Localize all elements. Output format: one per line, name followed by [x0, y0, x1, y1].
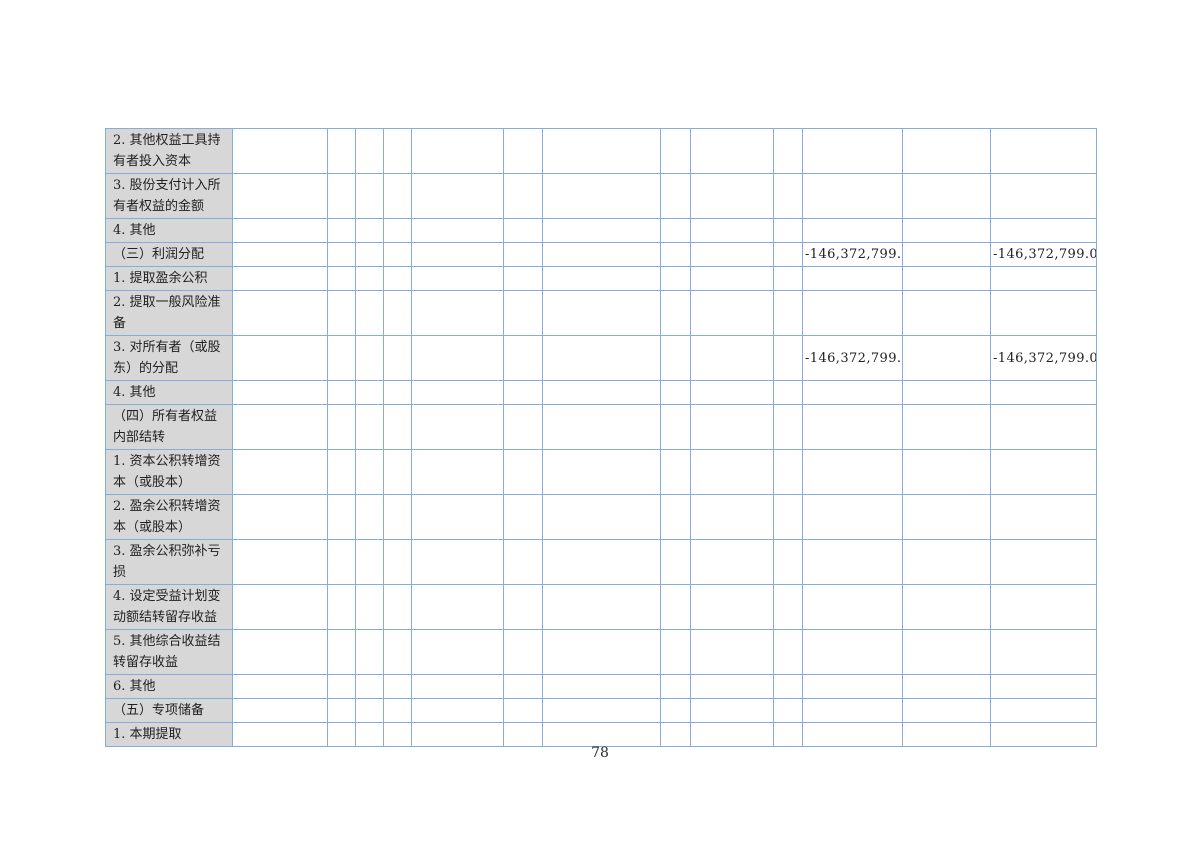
data-cell: [356, 699, 384, 723]
data-cell: [774, 699, 803, 723]
data-cell: [691, 291, 774, 336]
data-cell: [991, 630, 1097, 675]
data-cell: [803, 405, 903, 450]
data-cell: [412, 219, 504, 243]
data-cell: -146,372,799.02: [803, 243, 903, 267]
data-cell: [356, 243, 384, 267]
data-cell: [356, 381, 384, 405]
data-cell: [504, 336, 543, 381]
data-cell: [803, 630, 903, 675]
data-cell: [356, 585, 384, 630]
data-cell: [356, 267, 384, 291]
data-cell: [774, 585, 803, 630]
data-cell: [504, 675, 543, 699]
data-cell: [543, 174, 661, 219]
row-label: （三）利润分配: [106, 243, 233, 267]
data-cell: [504, 129, 543, 174]
data-cell: [233, 243, 328, 267]
data-cell: [991, 405, 1097, 450]
data-cell: [661, 405, 691, 450]
data-cell: [691, 495, 774, 540]
data-cell: [691, 129, 774, 174]
data-cell: [233, 540, 328, 585]
data-cell: [356, 405, 384, 450]
data-cell: [412, 585, 504, 630]
data-cell: [384, 405, 412, 450]
data-cell: [543, 129, 661, 174]
data-cell: [991, 219, 1097, 243]
data-cell: [356, 495, 384, 540]
data-cell: [774, 267, 803, 291]
data-cell: [233, 291, 328, 336]
row-label: （四）所有者权益内部结转: [106, 405, 233, 450]
data-cell: [774, 723, 803, 747]
table-row: 2. 其他权益工具持有者投入资本: [106, 129, 1097, 174]
data-cell: [661, 630, 691, 675]
data-cell: [903, 495, 991, 540]
data-cell: [691, 243, 774, 267]
data-cell: [384, 243, 412, 267]
data-cell: [543, 699, 661, 723]
data-cell: [412, 267, 504, 291]
data-cell: [991, 495, 1097, 540]
data-cell: [328, 174, 356, 219]
table-row: 4. 设定受益计划变动额结转留存收益: [106, 585, 1097, 630]
data-cell: [691, 630, 774, 675]
data-cell: [504, 585, 543, 630]
data-cell: [412, 675, 504, 699]
data-cell: [691, 174, 774, 219]
data-cell: [661, 336, 691, 381]
data-cell: [903, 267, 991, 291]
data-cell: [384, 495, 412, 540]
data-cell: [504, 267, 543, 291]
data-cell: [384, 540, 412, 585]
row-label: 3. 股份支付计入所有者权益的金额: [106, 174, 233, 219]
data-cell: [991, 699, 1097, 723]
data-cell: [356, 723, 384, 747]
data-cell: [903, 723, 991, 747]
data-cell: [504, 450, 543, 495]
data-cell: [991, 723, 1097, 747]
data-cell: [412, 699, 504, 723]
data-cell: -146,372,799.02: [991, 336, 1097, 381]
data-cell: [233, 405, 328, 450]
data-cell: [774, 675, 803, 699]
data-cell: [384, 129, 412, 174]
data-cell: [328, 291, 356, 336]
data-cell: [691, 405, 774, 450]
data-cell: [774, 219, 803, 243]
data-cell: [504, 243, 543, 267]
row-label: 1. 资本公积转增资本（或股本）: [106, 450, 233, 495]
data-cell: [774, 336, 803, 381]
data-cell: [384, 675, 412, 699]
data-cell: -146,372,799.02: [803, 336, 903, 381]
data-cell: [328, 381, 356, 405]
data-cell: [328, 243, 356, 267]
data-cell: [903, 174, 991, 219]
data-cell: [233, 450, 328, 495]
data-cell: [543, 243, 661, 267]
data-cell: [412, 450, 504, 495]
data-cell: [661, 267, 691, 291]
data-cell: [903, 699, 991, 723]
data-cell: [328, 495, 356, 540]
table-row: （三）利润分配-146,372,799.02-146,372,799.02: [106, 243, 1097, 267]
data-cell: [233, 675, 328, 699]
row-label: 2. 其他权益工具持有者投入资本: [106, 129, 233, 174]
data-cell: [543, 585, 661, 630]
data-cell: [356, 450, 384, 495]
data-cell: [803, 267, 903, 291]
row-label: 3. 对所有者（或股东）的分配: [106, 336, 233, 381]
data-cell: [328, 450, 356, 495]
data-cell: [384, 723, 412, 747]
row-label: 1. 本期提取: [106, 723, 233, 747]
data-cell: [356, 291, 384, 336]
data-cell: [803, 291, 903, 336]
data-cell: [412, 243, 504, 267]
data-cell: [774, 630, 803, 675]
data-cell: [903, 675, 991, 699]
data-cell: [543, 723, 661, 747]
data-cell: [412, 405, 504, 450]
data-cell: [356, 129, 384, 174]
data-cell: [991, 129, 1097, 174]
data-cell: [903, 336, 991, 381]
data-cell: [412, 495, 504, 540]
data-cell: [691, 699, 774, 723]
table-row: 1. 资本公积转增资本（或股本）: [106, 450, 1097, 495]
data-cell: [661, 291, 691, 336]
data-cell: [661, 129, 691, 174]
data-cell: [691, 585, 774, 630]
data-cell: [356, 174, 384, 219]
data-cell: [661, 540, 691, 585]
data-cell: [803, 174, 903, 219]
data-cell: [661, 174, 691, 219]
data-cell: [774, 174, 803, 219]
data-cell: [233, 585, 328, 630]
data-cell: [233, 381, 328, 405]
data-cell: [691, 450, 774, 495]
data-cell: [356, 630, 384, 675]
data-cell: [991, 540, 1097, 585]
data-cell: [384, 630, 412, 675]
data-cell: [661, 450, 691, 495]
data-cell: [691, 267, 774, 291]
row-label: 4. 其他: [106, 219, 233, 243]
data-cell: [328, 129, 356, 174]
data-cell: [233, 630, 328, 675]
data-cell: [661, 219, 691, 243]
data-cell: [661, 243, 691, 267]
data-cell: [328, 675, 356, 699]
table-row: （四）所有者权益内部结转: [106, 405, 1097, 450]
table-body: 2. 其他权益工具持有者投入资本3. 股份支付计入所有者权益的金额4. 其他（三…: [106, 129, 1097, 747]
data-cell: [328, 540, 356, 585]
data-cell: [233, 174, 328, 219]
data-cell: [991, 381, 1097, 405]
data-cell: [328, 219, 356, 243]
data-cell: [691, 675, 774, 699]
data-cell: [412, 291, 504, 336]
data-cell: [661, 495, 691, 540]
data-cell: [803, 585, 903, 630]
table-row: 2. 提取一般风险准备: [106, 291, 1097, 336]
data-cell: [774, 450, 803, 495]
equity-statement-table: 2. 其他权益工具持有者投入资本3. 股份支付计入所有者权益的金额4. 其他（三…: [105, 128, 1097, 747]
data-cell: [504, 219, 543, 243]
data-cell: [661, 585, 691, 630]
row-label: 4. 其他: [106, 381, 233, 405]
data-cell: [384, 219, 412, 243]
data-cell: [803, 450, 903, 495]
data-cell: [661, 675, 691, 699]
data-cell: [903, 450, 991, 495]
row-label: 6. 其他: [106, 675, 233, 699]
data-cell: [328, 336, 356, 381]
data-cell: [504, 723, 543, 747]
data-cell: [774, 243, 803, 267]
data-cell: [384, 381, 412, 405]
document-page: 2. 其他权益工具持有者投入资本3. 股份支付计入所有者权益的金额4. 其他（三…: [0, 0, 1200, 848]
data-cell: [384, 267, 412, 291]
data-cell: [504, 174, 543, 219]
data-cell: [233, 723, 328, 747]
data-cell: [691, 723, 774, 747]
data-cell: [543, 405, 661, 450]
data-cell: [903, 243, 991, 267]
data-cell: [384, 174, 412, 219]
data-cell: [803, 540, 903, 585]
data-cell: [412, 129, 504, 174]
data-cell: [774, 495, 803, 540]
data-cell: [903, 585, 991, 630]
data-cell: [661, 381, 691, 405]
table-row: 3. 股份支付计入所有者权益的金额: [106, 174, 1097, 219]
row-label: （五）专项储备: [106, 699, 233, 723]
data-cell: [903, 381, 991, 405]
data-cell: [543, 540, 661, 585]
data-cell: [504, 699, 543, 723]
data-cell: [233, 495, 328, 540]
data-cell: [903, 540, 991, 585]
table-row: 4. 其他: [106, 219, 1097, 243]
data-cell: [384, 585, 412, 630]
table-row: 3. 盈余公积弥补亏损: [106, 540, 1097, 585]
data-cell: [412, 381, 504, 405]
data-cell: [991, 450, 1097, 495]
data-cell: [328, 267, 356, 291]
data-cell: [543, 450, 661, 495]
data-cell: [384, 291, 412, 336]
data-cell: [774, 291, 803, 336]
data-cell: [504, 381, 543, 405]
data-cell: [543, 219, 661, 243]
data-cell: [543, 675, 661, 699]
data-cell: [991, 675, 1097, 699]
data-cell: [691, 381, 774, 405]
data-cell: [356, 219, 384, 243]
data-cell: [991, 174, 1097, 219]
data-cell: -146,372,799.02: [991, 243, 1097, 267]
row-label: 2. 提取一般风险准备: [106, 291, 233, 336]
data-cell: [356, 540, 384, 585]
data-cell: [328, 630, 356, 675]
data-cell: [903, 291, 991, 336]
data-cell: [543, 336, 661, 381]
row-label: 1. 提取盈余公积: [106, 267, 233, 291]
data-cell: [356, 336, 384, 381]
row-label: 2. 盈余公积转增资本（或股本）: [106, 495, 233, 540]
row-label: 3. 盈余公积弥补亏损: [106, 540, 233, 585]
data-cell: [903, 219, 991, 243]
data-cell: [661, 723, 691, 747]
row-label: 4. 设定受益计划变动额结转留存收益: [106, 585, 233, 630]
data-cell: [412, 540, 504, 585]
data-cell: [803, 495, 903, 540]
data-cell: [543, 291, 661, 336]
data-cell: [774, 381, 803, 405]
data-cell: [504, 540, 543, 585]
data-cell: [991, 291, 1097, 336]
data-cell: [691, 336, 774, 381]
data-cell: [233, 336, 328, 381]
data-cell: [328, 405, 356, 450]
data-cell: [412, 630, 504, 675]
data-cell: [356, 675, 384, 699]
data-cell: [803, 219, 903, 243]
data-cell: [233, 699, 328, 723]
data-cell: [774, 129, 803, 174]
data-cell: [328, 585, 356, 630]
table-row: 2. 盈余公积转增资本（或股本）: [106, 495, 1097, 540]
data-cell: [543, 630, 661, 675]
table-row: （五）专项储备: [106, 699, 1097, 723]
data-cell: [412, 174, 504, 219]
data-cell: [233, 129, 328, 174]
data-cell: [803, 675, 903, 699]
data-cell: [543, 381, 661, 405]
data-cell: [543, 267, 661, 291]
table-row: 1. 提取盈余公积: [106, 267, 1097, 291]
table-row: 4. 其他: [106, 381, 1097, 405]
page-number: 78: [0, 745, 1200, 761]
data-cell: [661, 699, 691, 723]
data-cell: [774, 405, 803, 450]
data-cell: [691, 219, 774, 243]
data-cell: [803, 699, 903, 723]
data-cell: [543, 495, 661, 540]
table-row: 3. 对所有者（或股东）的分配-146,372,799.02-146,372,7…: [106, 336, 1097, 381]
data-cell: [328, 723, 356, 747]
table-row: 5. 其他综合收益结转留存收益: [106, 630, 1097, 675]
data-cell: [991, 585, 1097, 630]
data-cell: [233, 267, 328, 291]
data-cell: [803, 723, 903, 747]
data-cell: [504, 291, 543, 336]
data-cell: [412, 723, 504, 747]
data-cell: [384, 336, 412, 381]
data-cell: [504, 495, 543, 540]
data-cell: [328, 699, 356, 723]
row-label: 5. 其他综合收益结转留存收益: [106, 630, 233, 675]
data-cell: [803, 381, 903, 405]
data-cell: [903, 405, 991, 450]
data-cell: [991, 267, 1097, 291]
data-cell: [384, 699, 412, 723]
data-cell: [903, 129, 991, 174]
data-cell: [504, 630, 543, 675]
data-cell: [774, 540, 803, 585]
data-cell: [903, 630, 991, 675]
table-row: 6. 其他: [106, 675, 1097, 699]
data-cell: [504, 405, 543, 450]
table-row: 1. 本期提取: [106, 723, 1097, 747]
data-cell: [233, 219, 328, 243]
data-cell: [691, 540, 774, 585]
data-cell: [384, 450, 412, 495]
data-cell: [803, 129, 903, 174]
data-cell: [412, 336, 504, 381]
